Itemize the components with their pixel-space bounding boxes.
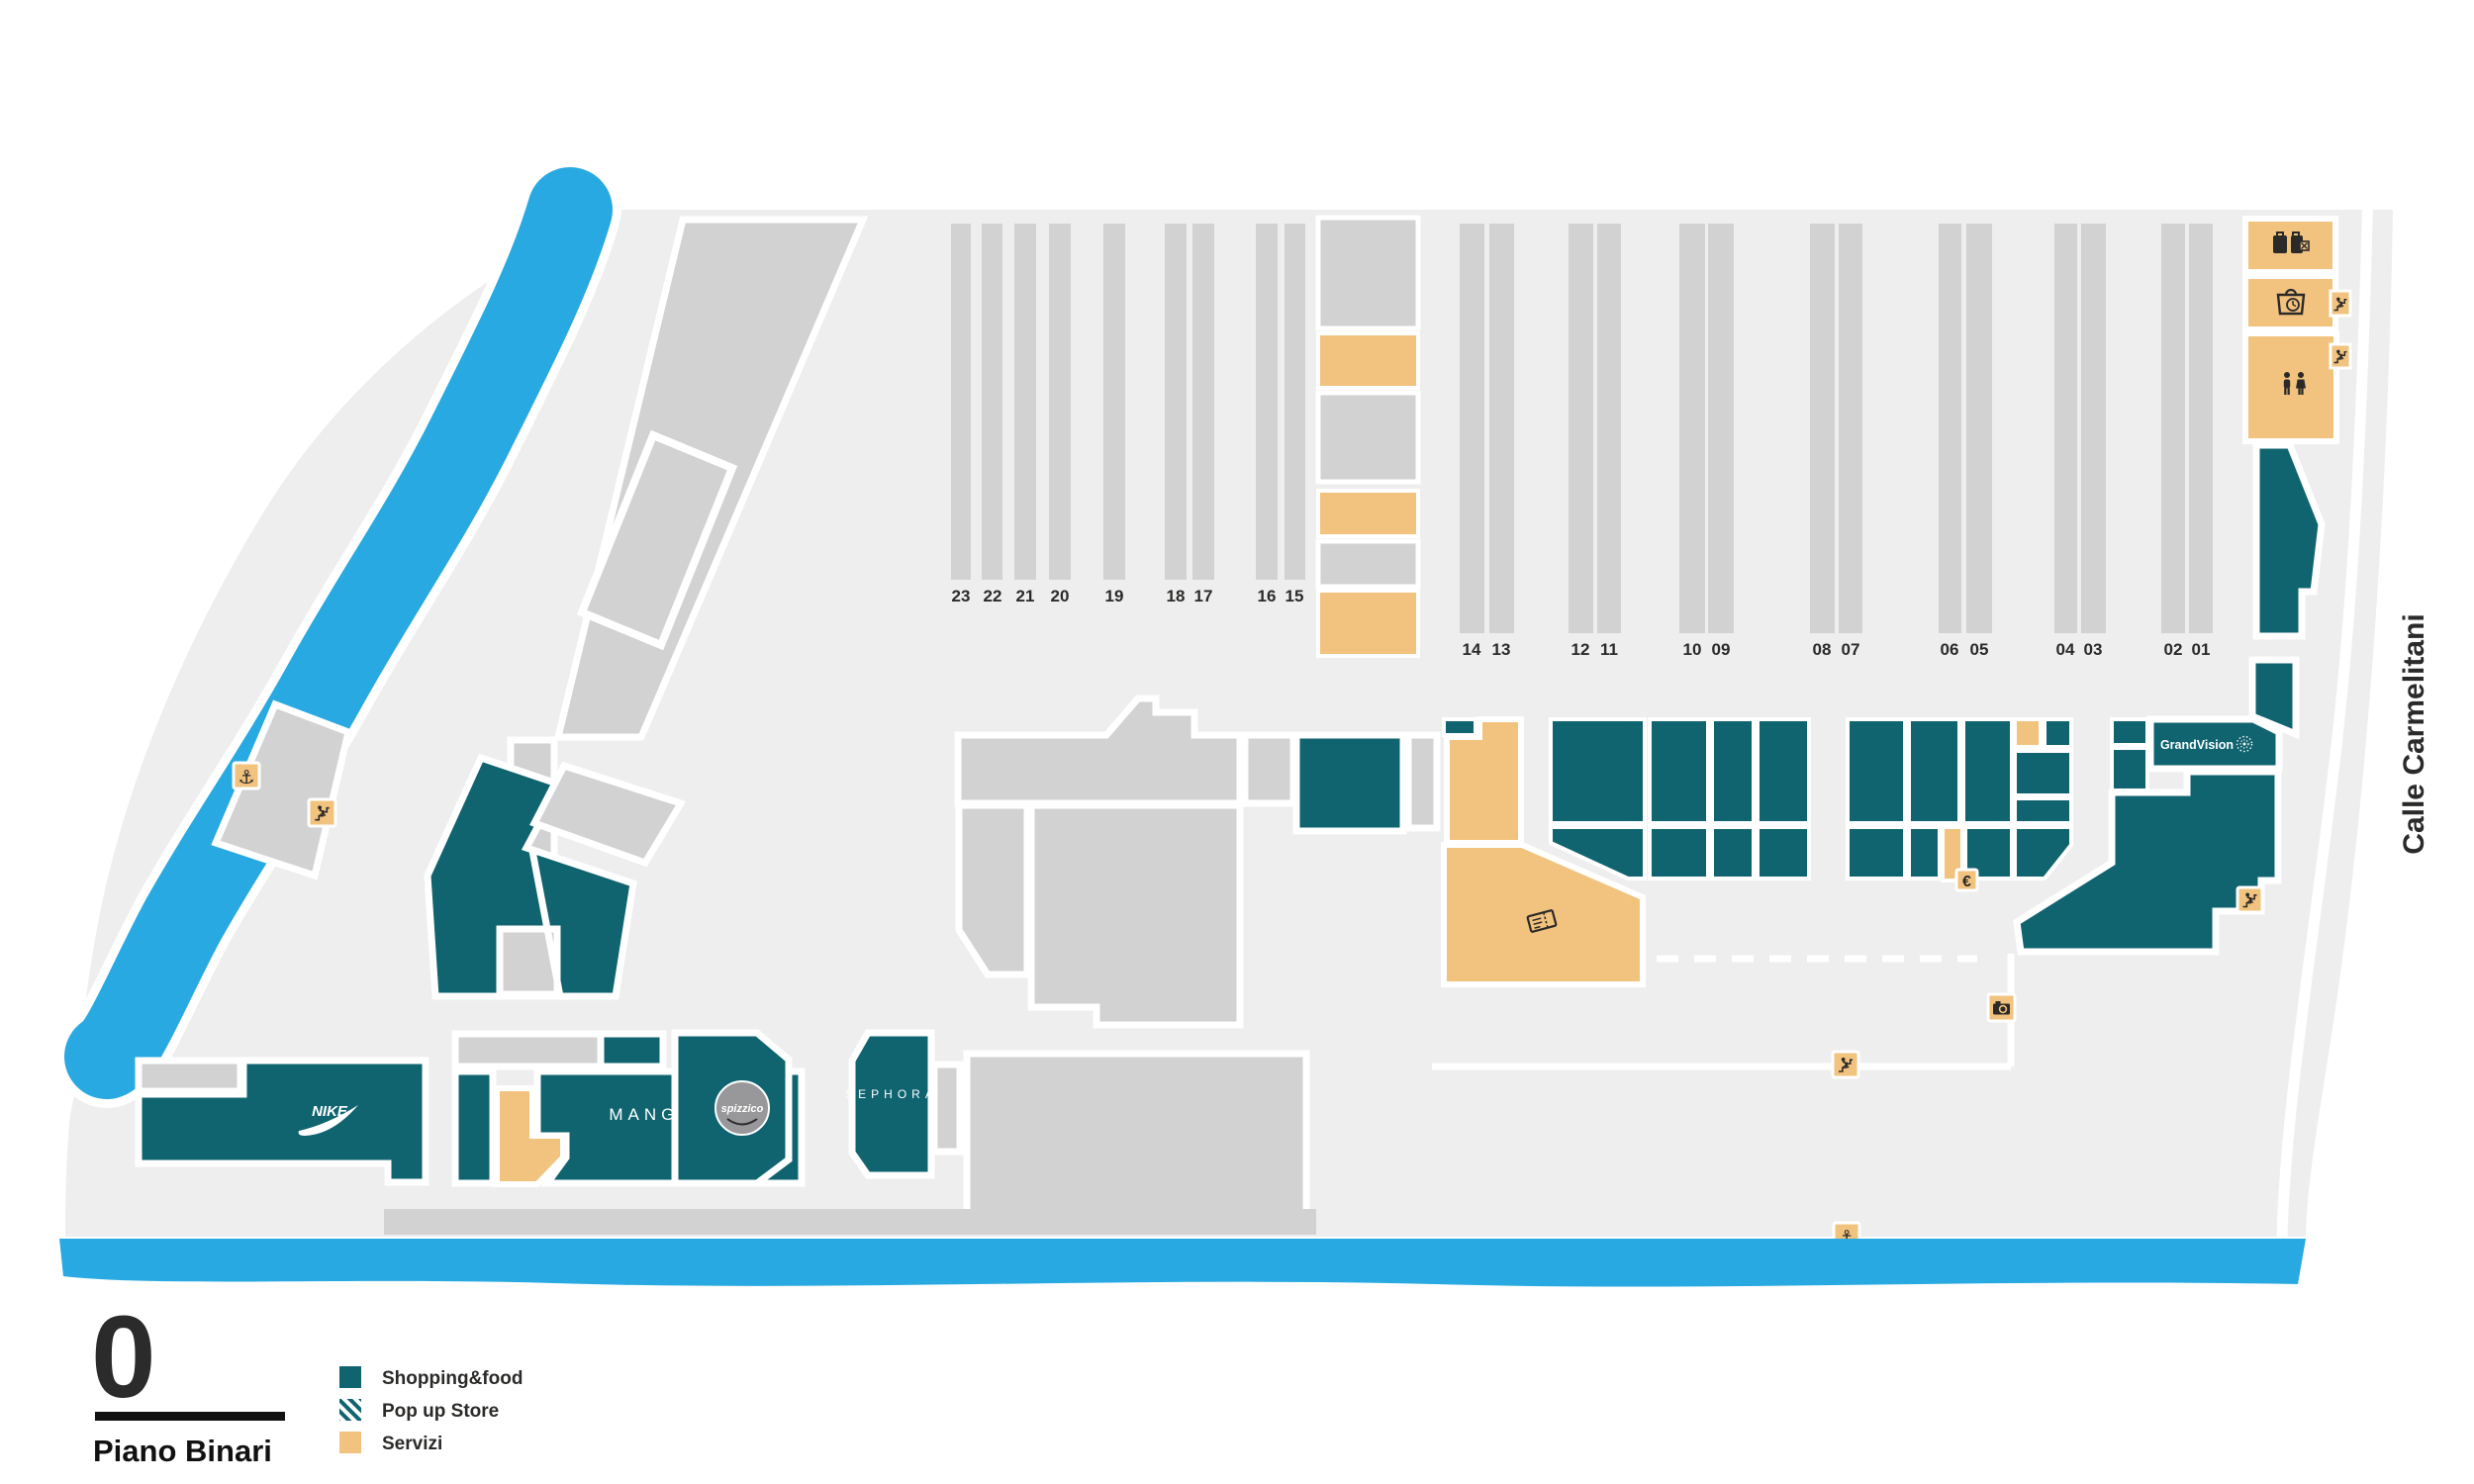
track-label-17[interactable]: 17 xyxy=(1194,587,1213,605)
track-label-20[interactable]: 20 xyxy=(1051,587,1070,605)
anchor-icon: ⚓ xyxy=(238,767,254,788)
shop-unit[interactable] xyxy=(1963,719,2012,823)
track-label-18[interactable]: 18 xyxy=(1167,587,1186,605)
shop-unit[interactable] xyxy=(1650,719,1708,823)
floor-plan-svg: 23 22 21 20 19 18 17 16 15 14 13 xyxy=(0,0,2474,1484)
track-label-01[interactable]: 01 xyxy=(2192,640,2211,659)
track-label-23[interactable]: 23 xyxy=(952,587,971,605)
shop-unit[interactable] xyxy=(1551,719,1645,823)
shop-unit[interactable] xyxy=(1712,719,1754,823)
canal-south xyxy=(59,1239,2306,1287)
service-left-luggage[interactable] xyxy=(2245,276,2335,329)
retail-grid-A xyxy=(1551,719,1809,879)
track-label-19[interactable]: 19 xyxy=(1105,587,1124,605)
track-label-03[interactable]: 03 xyxy=(2084,640,2103,659)
track-label-15[interactable]: 15 xyxy=(1285,587,1304,605)
south-walkway xyxy=(384,1209,1316,1235)
track-label-10[interactable]: 10 xyxy=(1683,640,1702,659)
service-unit[interactable] xyxy=(2015,719,2041,747)
sephora-label: SEPHORA xyxy=(845,1087,938,1101)
legend: 0 Piano Binari Shopping&food Pop up Stor… xyxy=(91,1292,523,1468)
station-map-page: 23 22 21 20 19 18 17 16 15 14 13 xyxy=(0,0,2474,1484)
track-label-21[interactable]: 21 xyxy=(1016,587,1035,605)
track-label-09[interactable]: 09 xyxy=(1712,640,1731,659)
shop-unit[interactable] xyxy=(2045,719,2071,747)
service-block-1[interactable] xyxy=(1318,333,1418,388)
shop-unit[interactable] xyxy=(1712,827,1754,879)
central-service-column xyxy=(1318,218,1418,656)
ticket-office-upper[interactable] xyxy=(1447,719,1521,843)
track-label-04[interactable]: 04 xyxy=(2056,640,2075,659)
shop-unit[interactable] xyxy=(1650,827,1708,879)
service-toilets[interactable] xyxy=(2245,333,2336,441)
store-sephora[interactable] xyxy=(852,1033,931,1175)
euro-icon: € xyxy=(1962,874,1971,890)
track-label-12[interactable]: 12 xyxy=(1571,640,1590,659)
legend-chip-popup xyxy=(339,1399,361,1421)
svg-text:GrandVision: GrandVision xyxy=(2160,738,2234,752)
service-block-3[interactable] xyxy=(1318,591,1418,656)
shop-unit[interactable] xyxy=(1848,827,1905,879)
shop-unit[interactable] xyxy=(2015,798,2071,823)
shop-unit[interactable] xyxy=(1909,719,1959,823)
track-label-05[interactable]: 05 xyxy=(1970,640,1989,659)
track-label-22[interactable]: 22 xyxy=(984,587,1002,605)
shop-unit[interactable] xyxy=(2112,748,2147,790)
legend-chip-services xyxy=(339,1432,361,1453)
legend-label-popup: Pop up Store xyxy=(382,1401,499,1422)
track-label-13[interactable]: 13 xyxy=(1492,640,1511,659)
legend-rule xyxy=(95,1412,285,1421)
track-label-06[interactable]: 06 xyxy=(1941,640,1959,659)
retail-grid-B xyxy=(1848,719,2071,881)
south-building xyxy=(967,1054,1306,1219)
track-label-02[interactable]: 02 xyxy=(2164,640,2183,659)
track-label-07[interactable]: 07 xyxy=(1842,640,1860,659)
street-label: Calle Carmelitani xyxy=(2398,613,2430,854)
legend-chip-shopping xyxy=(339,1366,361,1388)
service-lockers[interactable] xyxy=(2245,219,2335,272)
shop-unit[interactable] xyxy=(2015,751,2071,795)
shop-unit[interactable] xyxy=(2112,719,2147,745)
svg-text:spizzico: spizzico xyxy=(721,1103,764,1115)
floor-name: Piano Binari xyxy=(93,1434,272,1468)
track-label-11[interactable]: 11 xyxy=(1600,640,1618,659)
floor-number: 0 xyxy=(91,1292,156,1423)
track-label-16[interactable]: 16 xyxy=(1258,587,1277,605)
legend-label-shopping: Shopping&food xyxy=(382,1368,523,1389)
shop-unit[interactable] xyxy=(1758,719,1809,823)
legend-label-services: Servizi xyxy=(382,1434,442,1454)
service-block-2[interactable] xyxy=(1318,491,1418,536)
shop-unit[interactable] xyxy=(1848,719,1905,823)
track-label-14[interactable]: 14 xyxy=(1463,640,1481,659)
spizzico-logo: spizzico xyxy=(715,1081,769,1135)
track-label-08[interactable]: 08 xyxy=(1813,640,1832,659)
shop-unit[interactable] xyxy=(1758,827,1809,879)
shop-unit[interactable] xyxy=(1909,827,1940,879)
